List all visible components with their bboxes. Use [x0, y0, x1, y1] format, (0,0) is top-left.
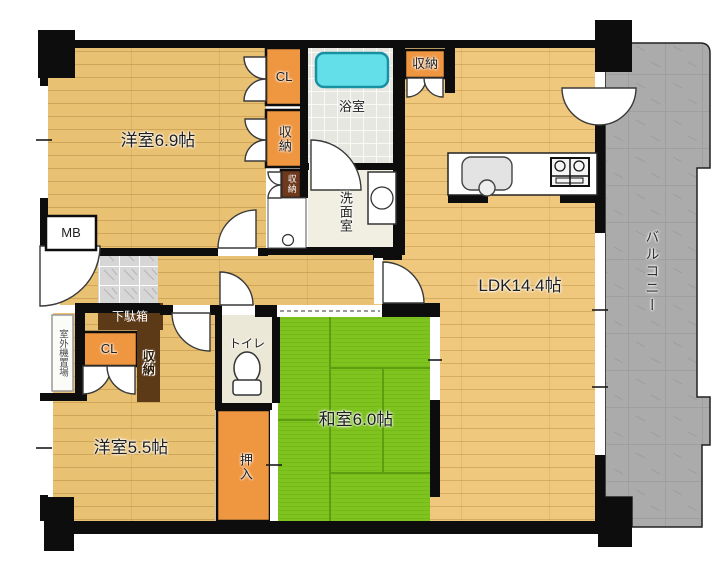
bedroom2-label: 洋室5.5帖: [94, 439, 169, 457]
ldk-label: LDK14.4帖: [478, 277, 561, 295]
meter-box-label: MB: [61, 226, 81, 240]
toilet-icon: [233, 352, 261, 395]
window-bedroom1: [40, 86, 48, 198]
shoe-box-label: 下駄箱: [112, 311, 148, 324]
floor-plan-drawing: [0, 0, 720, 576]
sink-icon: [462, 157, 512, 196]
washitsu-label: 和室6.0帖: [319, 411, 394, 429]
genkan-tile-floor: [98, 252, 158, 305]
storage-kitchen-label: 収納: [412, 57, 438, 71]
washing-machine-icon: [368, 172, 396, 224]
bedroom1-door-opening: [218, 248, 258, 256]
toilet-door-opening: [222, 305, 255, 315]
kitchen-counter: [448, 153, 597, 196]
toilet-label: トイレ: [229, 338, 265, 351]
oshiire-label: 押入: [238, 453, 252, 481]
storage-mid-label: 収納: [277, 125, 291, 153]
stove-icon: [551, 158, 589, 186]
storage-small-label: 収納: [286, 174, 295, 194]
storage-small-door-arc: [268, 172, 281, 185]
bedroom1-label: 洋室6.9帖: [121, 132, 196, 150]
window-ldk-sliding: [595, 233, 605, 455]
washroom-label: 洗面室: [338, 191, 352, 233]
balcony-label: バルコニー: [645, 230, 660, 315]
bathtub-icon: [316, 53, 388, 87]
floor-plan: 洋室6.9帖 CL 収納 収納 浴室 洗面室 収納 LDK14.4帖 バルコニー…: [0, 0, 720, 576]
door-knob-icon: [283, 235, 294, 246]
washitsu-ldk-sliding-door: [430, 317, 440, 400]
bath-label: 浴室: [339, 100, 365, 114]
storage-small-door-arc: [268, 185, 281, 198]
closet-top-label: CL: [276, 70, 293, 84]
ldk-door-opening: [374, 258, 383, 304]
storage-entry-label: 収納: [142, 350, 155, 376]
outdoor-unit-label: 室外機置場: [57, 329, 67, 377]
closet-entry-label: CL: [101, 342, 118, 356]
